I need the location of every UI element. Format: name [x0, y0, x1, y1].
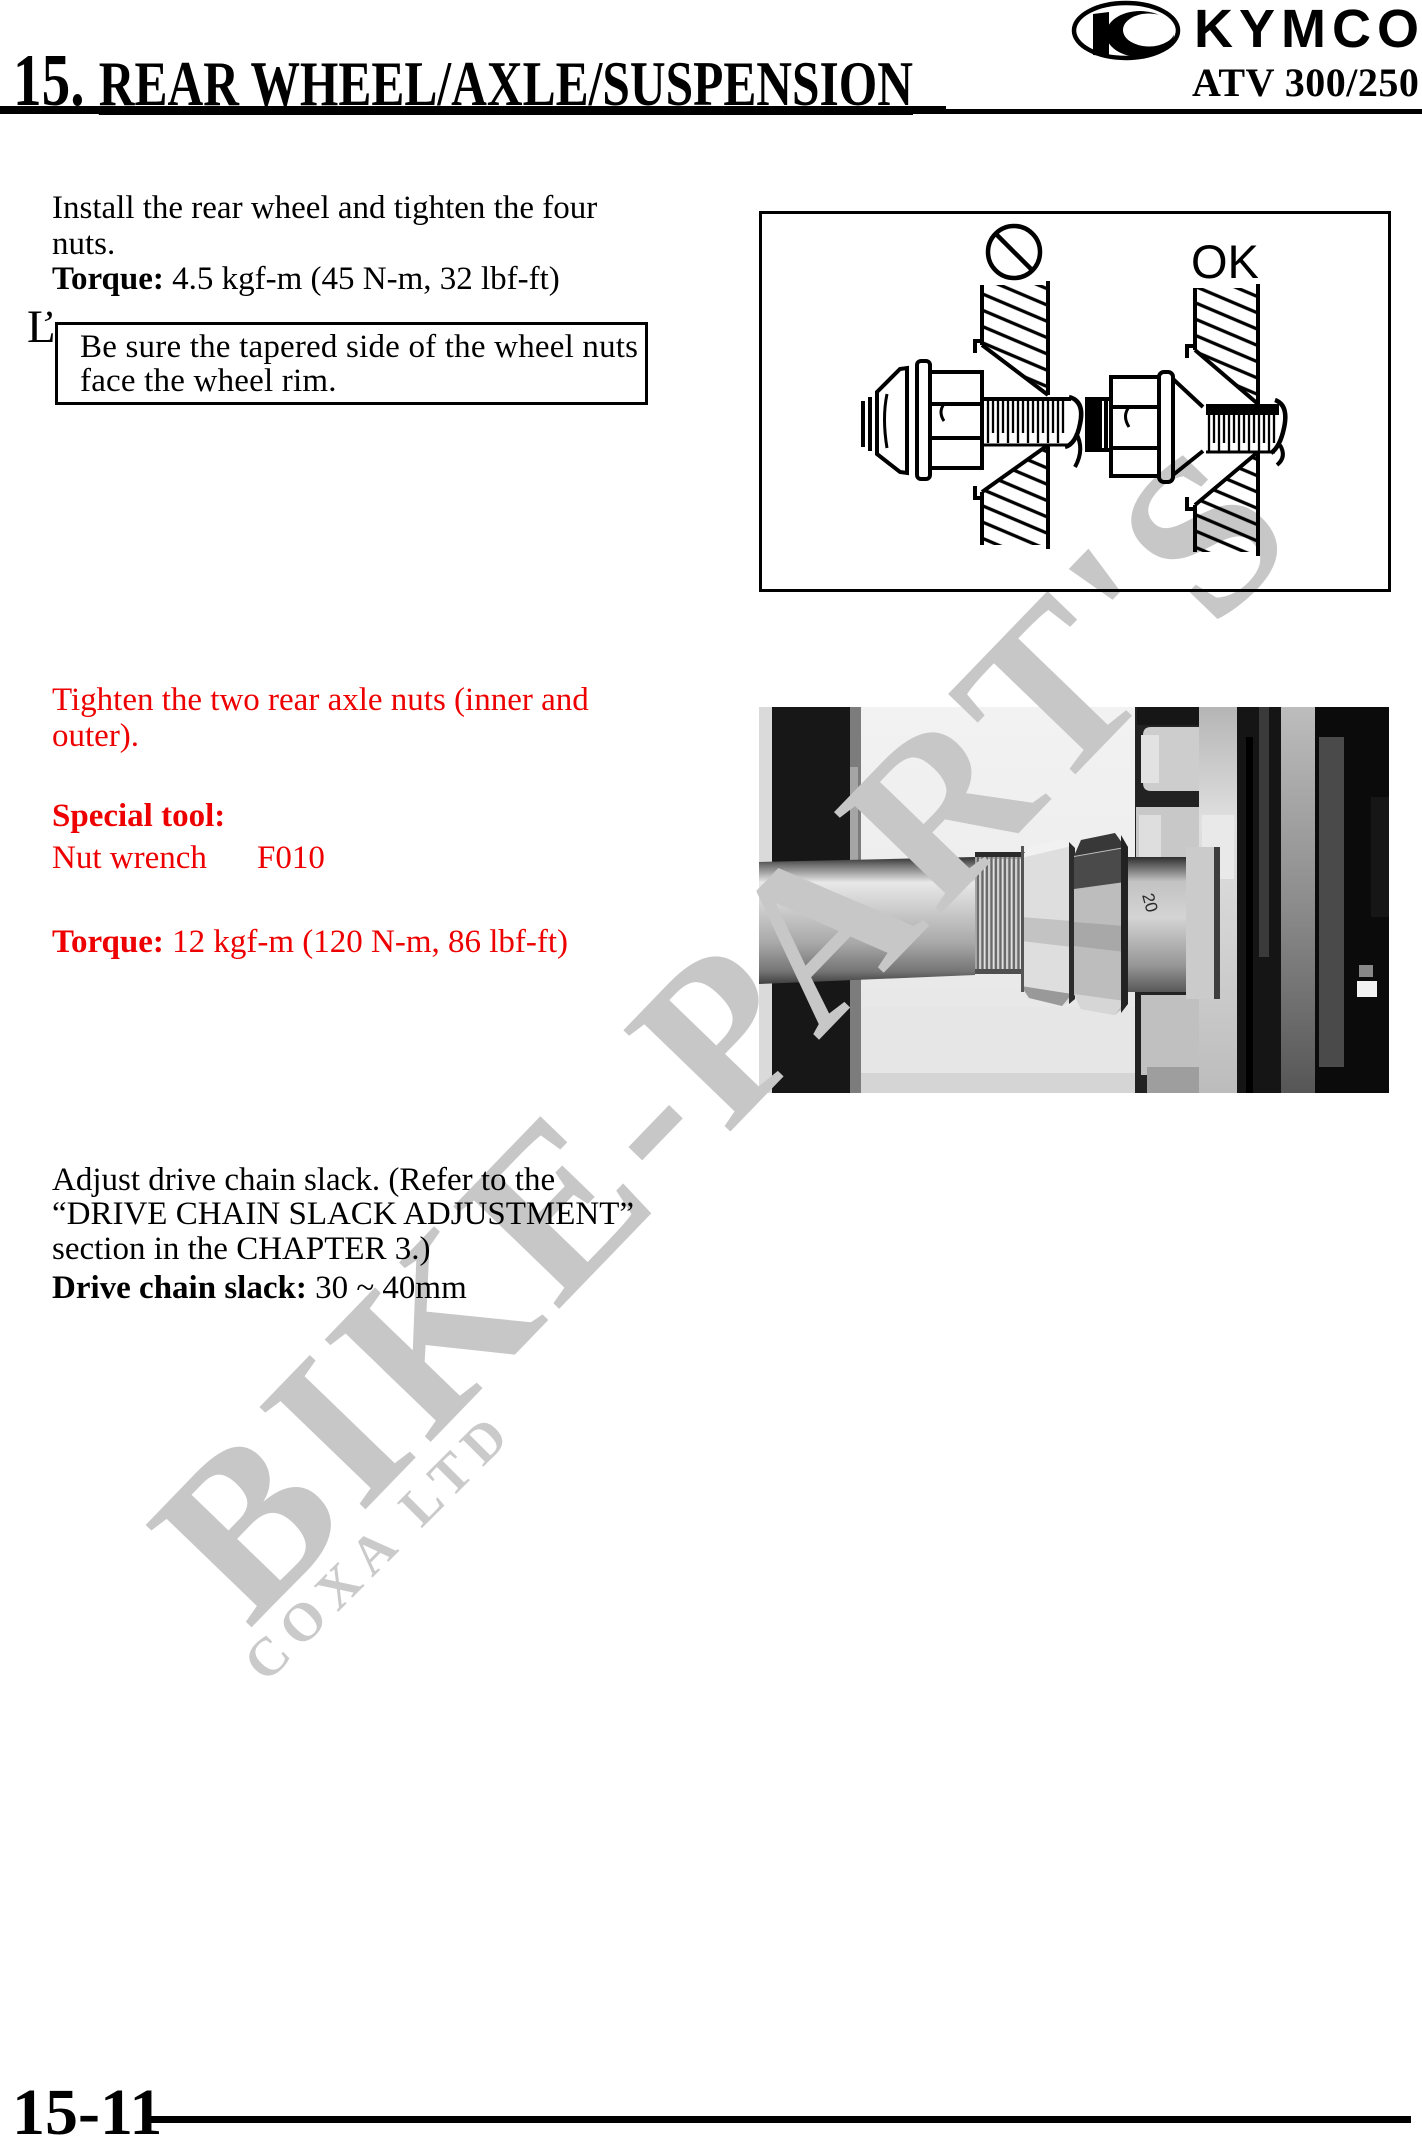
svg-text:OK: OK: [1191, 235, 1259, 288]
